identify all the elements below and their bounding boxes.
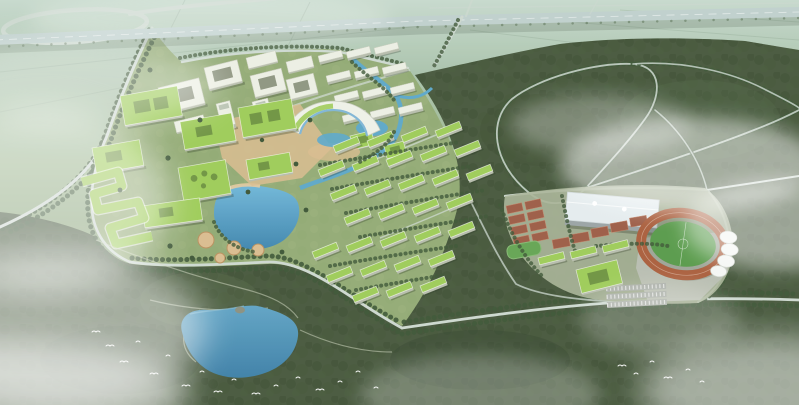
aerial-masterplan-rendering bbox=[0, 0, 799, 405]
atmospheric-haze bbox=[0, 0, 799, 405]
campus-aerial-scene bbox=[0, 0, 799, 405]
